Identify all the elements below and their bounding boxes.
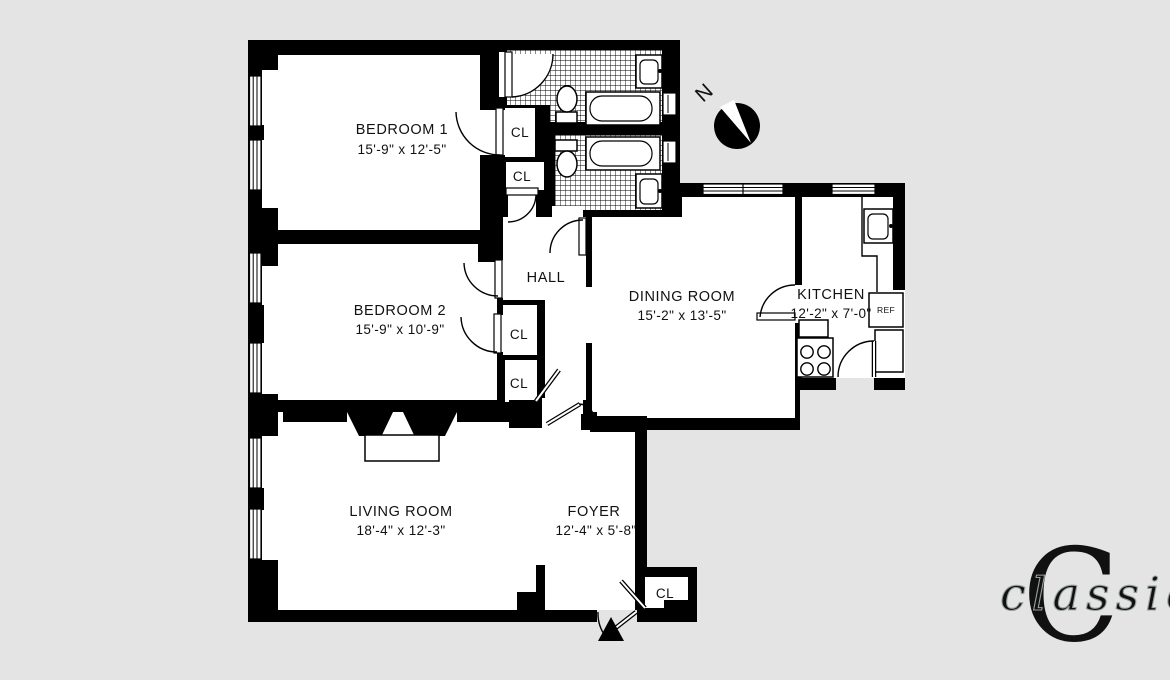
window [250,76,262,126]
window [250,140,262,190]
refrigerator-label: REF [877,305,895,315]
dining-name: DINING ROOM [629,289,736,305]
bathtub2-basin [590,141,652,166]
closet3-label: CL [510,327,528,342]
sink1-basin [640,60,658,84]
foyer-name: FOYER [568,504,621,520]
dining-dims: 15'-2" x 13'-5" [637,308,726,323]
closet4-label: CL [510,376,528,391]
toilet2-bowl [557,151,577,177]
sink2-faucet [658,189,662,193]
window [703,184,783,195]
window [250,438,262,488]
bathtub1-plumbing [663,93,676,115]
floor-plan-drawing: N BEDROOM 1 15'-9" x 12'-5" BEDROOM 2 15… [0,0,1170,680]
kitchen-dims: 12'-2" x 7'-0" [790,306,871,321]
kitchen-sink-basin [868,214,888,239]
stove-counter [799,320,828,337]
bedroom1-name: BEDROOM 1 [356,122,448,138]
bathtub2-plumbing [663,141,676,163]
toilet1-tank [556,112,577,123]
sink1-faucet [658,69,662,73]
window [832,184,875,195]
toilet1-bowl [557,86,577,112]
toilet2-tank [555,140,577,151]
kitchen-sink-faucet [889,224,893,228]
fireplace-hearth [365,435,439,461]
bathtub1-basin [590,96,652,121]
entry-closet-label: CL [656,586,674,601]
closet2-label: CL [513,169,531,184]
kitchen-name: KITCHEN [797,287,865,303]
floor-plan-page: N BEDROOM 1 15'-9" x 12'-5" BEDROOM 2 15… [0,0,1170,680]
sink2-basin [640,179,658,204]
window [250,509,262,559]
hall-name: HALL [527,270,566,286]
window [250,253,262,303]
closet1-label: CL [511,125,529,140]
foyer-dims: 12'-4" x 5'-8" [555,523,636,538]
logo-wordmark: classic [1000,567,1170,621]
kitchen-counter-south [875,330,903,372]
bedroom1-dims: 15'-9" x 12'-5" [357,142,446,157]
living-name: LIVING ROOM [349,504,452,520]
bedroom2-dims: 15'-9" x 10'-9" [355,322,444,337]
living-dims: 18'-4" x 12'-3" [356,523,445,538]
bedroom2-name: BEDROOM 2 [354,303,446,319]
window [250,343,262,393]
